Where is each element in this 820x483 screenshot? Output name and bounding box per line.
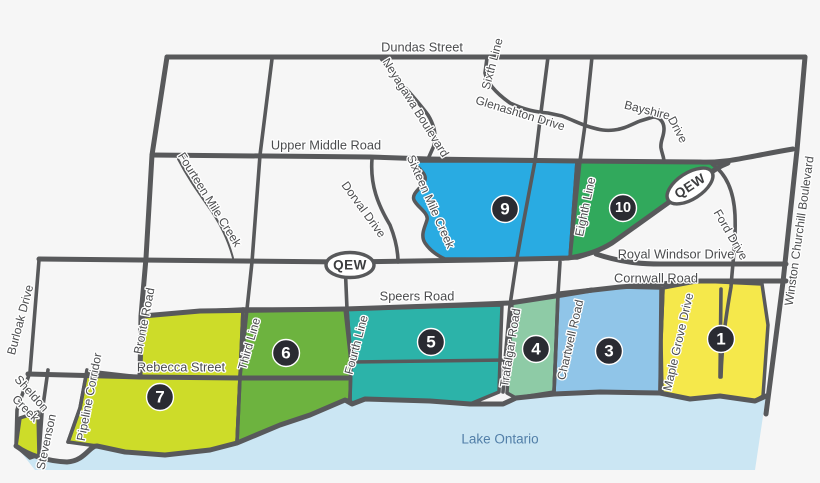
zone-4-badge[interactable]: 4 (523, 336, 550, 363)
label-lake-ontario: Lake Ontario (461, 432, 538, 447)
zone-4-number: 4 (531, 340, 541, 359)
label-upper-middle-road: Upper Middle Road (271, 137, 381, 152)
zone-1-number: 1 (716, 330, 725, 349)
label-cornwall-road: Cornwall Road (614, 270, 698, 285)
label-speers-road: Speers Road (380, 288, 455, 303)
zone-6-badge[interactable]: 6 (273, 340, 300, 367)
map-canvas: Dundas Street Sixth Line Neyagawa Boulev… (0, 0, 820, 483)
label-rebecca-street: Rebecca Street (137, 359, 226, 374)
zone-5-number: 5 (426, 333, 435, 352)
oakville-zones-map: Dundas Street Sixth Line Neyagawa Boulev… (0, 0, 820, 483)
zone-1-badge[interactable]: 1 (708, 326, 735, 353)
label-royal-windsor-drive: Royal Windsor Drive (618, 246, 735, 261)
road-lakeshore-zone5 (352, 360, 508, 362)
zone-7-number: 7 (155, 388, 164, 407)
label-dundas-street: Dundas Street (381, 39, 463, 54)
zone-10-number: 10 (615, 200, 631, 216)
qew-text-west: QEW (333, 258, 367, 273)
qew-badge-west: QEW (326, 253, 374, 278)
zone-7-badge[interactable]: 7 (147, 384, 174, 411)
zone-5-badge[interactable]: 5 (418, 329, 445, 356)
zone-3-number: 3 (604, 342, 613, 361)
zone-9-badge[interactable]: 9 (492, 196, 519, 223)
zone-6-number: 6 (281, 344, 290, 363)
zone-3-badge[interactable]: 3 (596, 338, 623, 365)
zone-10-badge[interactable]: 10 (610, 195, 637, 222)
zone-9-number: 9 (500, 200, 509, 219)
